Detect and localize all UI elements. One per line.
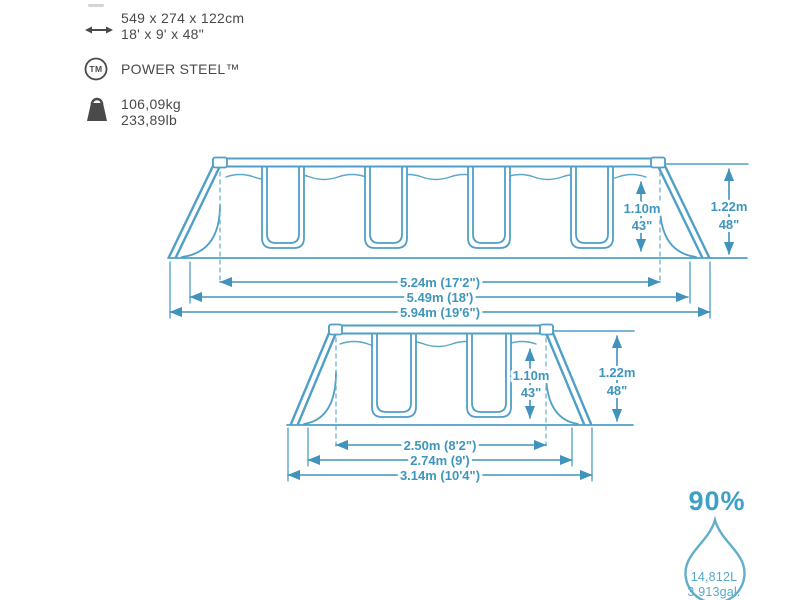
height-label-total-in: 48" [719, 217, 740, 232]
height-label-total-in: 48" [607, 383, 628, 398]
dim-label-length-total: 5.94m (19'6") [400, 305, 480, 320]
height-label-water-m: 1.10m [624, 201, 661, 216]
pool-rail [329, 325, 553, 335]
pool-diagram-svg: 5.24m (17'2") 5.49m (18') 5.94m (19'6") … [0, 0, 800, 600]
volume-liters: 14,812L [691, 570, 738, 584]
height-label-water-m: 1.10m [513, 368, 550, 383]
dim-label-width-frame: 2.74m (9') [410, 453, 469, 468]
pool-leg-left [291, 333, 336, 424]
dim-label-width-total: 3.14m (10'4") [400, 468, 480, 483]
pool-leg-left [169, 166, 220, 257]
dim-label-length-inner: 5.24m (17'2") [400, 275, 480, 290]
fill-percent: 90% [688, 486, 745, 516]
height-label-total-m: 1.22m [711, 199, 748, 214]
dim-label-width-inner: 2.50m (8'2") [404, 438, 477, 453]
end-view-group: 2.50m (8'2") 2.74m (9') 3.14m (10'4") 1.… [287, 325, 635, 484]
page: 549 x 274 x 122cm 18' x 9' x 48" TM POWE… [0, 0, 800, 600]
height-label-water-in: 43" [521, 385, 542, 400]
pool-leg-right [658, 166, 709, 257]
height-label-total-m: 1.22m [599, 365, 636, 380]
dim-label-length-frame: 5.49m (18') [407, 290, 474, 305]
side-view-group: 5.24m (17'2") 5.49m (18') 5.94m (19'6") … [168, 158, 748, 321]
pool-rail [213, 158, 665, 168]
height-label-water-in: 43" [632, 218, 653, 233]
volume-gallons: 3,913gal. [687, 585, 740, 599]
capacity-block: 90% 14,812L 3,913gal. [686, 486, 746, 600]
pool-leg-right [546, 333, 591, 424]
